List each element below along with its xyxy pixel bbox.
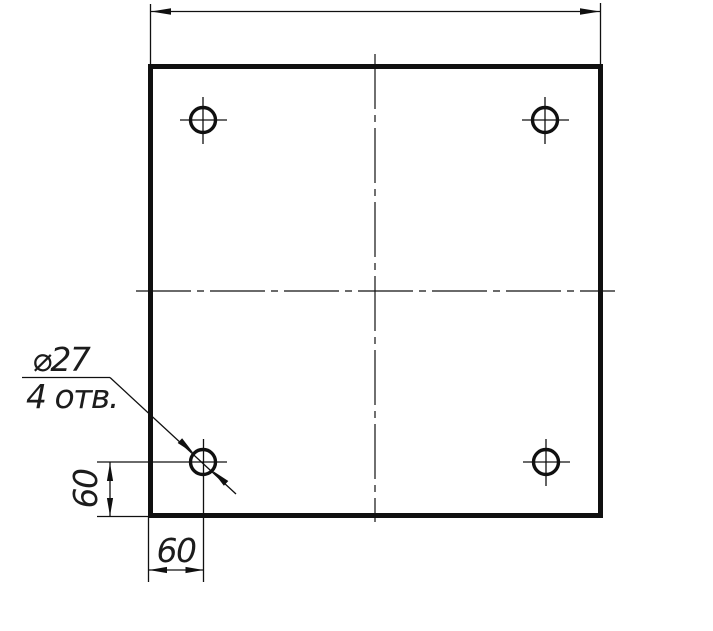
- dimension-hole-offset-bottom: 60: [149, 517, 204, 582]
- arrowhead-left: [151, 8, 171, 15]
- dimension-value-bottom: 60: [157, 531, 196, 570]
- hole-top-left: [180, 97, 227, 144]
- leader-arrowhead-lower: [212, 471, 228, 486]
- arrowhead-up: [107, 463, 113, 481]
- dimension-hole-offset-left: 60: [66, 462, 148, 517]
- arrowhead-right: [580, 8, 600, 15]
- hole-top-right: [522, 97, 569, 144]
- hole-bottom-right: [523, 439, 570, 486]
- leader-text-diameter: ⌀27: [32, 340, 91, 379]
- leader-arrowhead-upper: [178, 438, 194, 453]
- technical-drawing-canvas: 60 60 ⌀27 4 отв.: [0, 0, 713, 631]
- leader-text-hole-count: 4 отв.: [26, 377, 118, 416]
- arrowhead-down: [107, 498, 113, 516]
- dimension-value-left: 60: [66, 469, 105, 508]
